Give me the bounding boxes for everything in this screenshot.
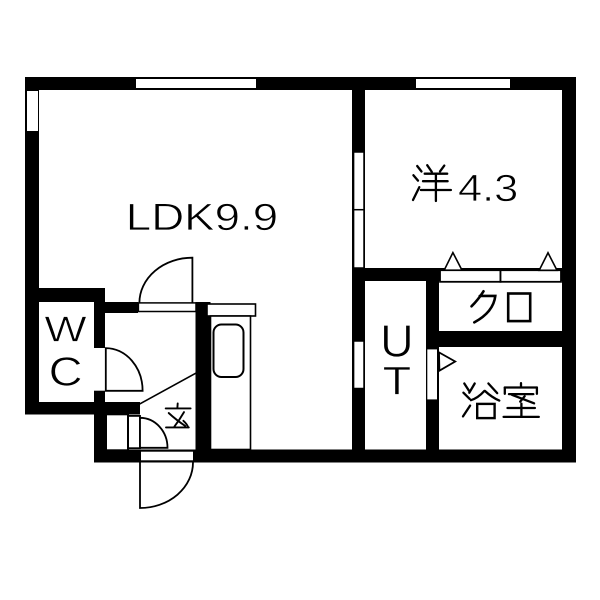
svg-text:W: W — [44, 309, 86, 350]
svg-text:LDK9.9: LDK9.9 — [126, 197, 278, 239]
svg-text:T: T — [383, 360, 412, 404]
svg-text:4.3: 4.3 — [458, 168, 518, 210]
svg-text:C: C — [49, 349, 83, 395]
